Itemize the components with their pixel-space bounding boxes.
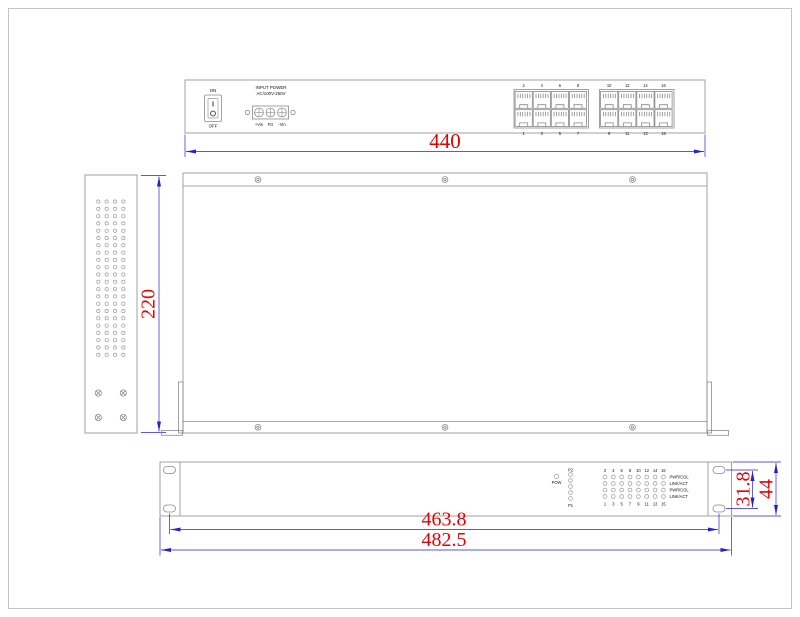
vent-hole [97, 229, 100, 232]
vent-hole [105, 309, 108, 312]
port-led [637, 488, 641, 492]
rj45-latch-notch [605, 105, 613, 109]
fiber-led [569, 473, 573, 477]
led-number-top: 14 [653, 468, 658, 473]
rj45-latch-notch [605, 123, 613, 127]
vent-hole [113, 302, 116, 305]
port-number-top: 6 [559, 83, 562, 88]
dim-44-text: 44 [756, 479, 778, 499]
screw-outer [630, 424, 636, 430]
led-number-bottom: 1 [604, 502, 607, 507]
rj45-latch-notch [660, 123, 668, 127]
rj45-port [601, 92, 618, 109]
vent-hole [97, 287, 100, 290]
vent-hole [97, 266, 100, 269]
input-power-label-line2: AC/100V-250V [256, 91, 285, 96]
fiber-top-label: P2 [568, 468, 574, 473]
vent-hole [113, 207, 116, 210]
rj45-port [655, 110, 672, 127]
port-led [603, 475, 607, 479]
port-led [611, 488, 615, 492]
vent-hole [105, 258, 108, 261]
vent-hole [122, 214, 125, 217]
vent-hole [122, 324, 125, 327]
vent-hole [122, 244, 125, 247]
vent-hole [122, 302, 125, 305]
port-number-top: 14 [643, 83, 648, 88]
port-led [628, 495, 632, 499]
screw-inner [444, 178, 446, 180]
power-switch-off-label: OFF [209, 124, 218, 129]
led-row-labels: PWR/COLLINK/ACTPWR/COLLINK/ACT [670, 475, 690, 500]
rj45-port [533, 110, 550, 127]
port-led [653, 475, 657, 479]
vent-hole [105, 200, 108, 203]
side-view: 220 [85, 175, 166, 433]
port-number-bottom: 3 [541, 131, 544, 136]
power-led [554, 474, 558, 478]
vent-hole [97, 236, 100, 239]
vent-hole [113, 251, 116, 254]
vent-hole [113, 258, 116, 261]
vent-hole [122, 339, 125, 342]
vent-hole [105, 339, 108, 342]
side-panel-outline [85, 175, 137, 433]
terminal-mount-hole-right [291, 110, 295, 114]
led-number-bottom: 13 [653, 502, 658, 507]
screw-outer [630, 177, 636, 183]
port-led [653, 488, 657, 492]
vent-hole [97, 317, 100, 320]
vent-hole [97, 222, 100, 225]
vent-hole [97, 324, 100, 327]
vent-hole [122, 295, 125, 298]
rj45-port-groups: 21436587109121114131615 [514, 83, 674, 136]
vent-hole [97, 200, 100, 203]
vent-hole [122, 251, 125, 254]
dim-440-text: 440 [429, 129, 461, 153]
rj45-latch-notch [556, 123, 564, 127]
port-number-bottom: 13 [643, 131, 648, 136]
vent-hole [122, 207, 125, 210]
port-led [603, 488, 607, 492]
vent-hole [122, 229, 125, 232]
port-led [620, 482, 624, 486]
rj45-port [515, 110, 532, 127]
fiber-led [569, 485, 573, 489]
port-led [645, 495, 649, 499]
vent-hole [113, 229, 116, 232]
dim-31-8-text: 31.8 [733, 472, 755, 507]
vent-hole [122, 222, 125, 225]
led-number-top: 8 [629, 468, 632, 473]
port-led [603, 482, 607, 486]
port-led [603, 495, 607, 499]
power-switch: ON OFF [205, 88, 222, 129]
screw-inner [631, 426, 633, 428]
ear-slot-top-right [713, 467, 725, 474]
rj45-latch-notch [538, 123, 546, 127]
vent-hole [97, 331, 100, 334]
port-number-bottom: 7 [577, 131, 580, 136]
side-screw-holes [95, 390, 126, 421]
front-panel-view: POW P2 P1 21436587109121114131615 PWR/CO… [160, 462, 781, 556]
led-number-top: 10 [636, 468, 641, 473]
vent-hole [113, 280, 116, 283]
port-led [628, 482, 632, 486]
side-screw-hole [120, 414, 126, 420]
dim-482-5-text: 482.5 [422, 529, 467, 551]
screw-inner [257, 426, 259, 428]
terminal-label-vplus: +Vin [255, 122, 264, 127]
rj45-port [551, 92, 568, 109]
vent-hole [122, 331, 125, 334]
vent-hole [105, 273, 108, 276]
port-number-top: 2 [523, 83, 526, 88]
port-number-top: 12 [625, 83, 630, 88]
vent-hole [113, 309, 116, 312]
vent-hole [122, 266, 125, 269]
port-number-top: 8 [577, 83, 580, 88]
port-led [645, 482, 649, 486]
vent-hole [105, 229, 108, 232]
rj45-latch-notch [538, 105, 546, 109]
rack-ear-left [162, 382, 184, 435]
led-number-bottom: 5 [621, 502, 624, 507]
rj45-port [637, 92, 654, 109]
vent-hole [113, 346, 116, 349]
vent-hole [113, 324, 116, 327]
rj45-port [569, 110, 586, 127]
port-number-bottom: 11 [625, 131, 630, 136]
rj45-port [655, 92, 672, 109]
led-row-label: LINK/ACT [670, 494, 689, 499]
fiber-led [569, 491, 573, 495]
rj45-latch-notch [556, 105, 564, 109]
screw-inner [631, 178, 633, 180]
port-led [662, 495, 666, 499]
vent-hole [105, 331, 108, 334]
side-screw-hole [120, 390, 126, 396]
screw-outer [442, 177, 448, 183]
cover-screw-hole [630, 177, 636, 183]
ear-slot-bottom-left [164, 505, 176, 512]
side-screw-hole [95, 414, 101, 420]
vent-hole [113, 244, 116, 247]
vent-hole [97, 280, 100, 283]
rj45-latch-notch [574, 123, 582, 127]
drawing-page: ON OFF INPUT POWER AC/100V-250V [0, 0, 800, 617]
port-led [662, 488, 666, 492]
port-number-bottom: 1 [523, 131, 526, 136]
vent-hole [122, 258, 125, 261]
port-number-bottom: 15 [661, 131, 666, 136]
vent-hole [105, 295, 108, 298]
vent-hole [105, 346, 108, 349]
vent-hole [105, 251, 108, 254]
vent-hole [105, 244, 108, 247]
cover-screw-hole [255, 424, 261, 430]
port-led [662, 475, 666, 479]
vent-hole [105, 353, 108, 356]
vent-hole [105, 207, 108, 210]
rj45-latch-notch [641, 123, 649, 127]
vent-hole [113, 331, 116, 334]
vent-hole [97, 309, 100, 312]
chassis-outline [183, 173, 707, 433]
dim-220-text: 220 [138, 289, 160, 319]
port-led [628, 475, 632, 479]
ear-slot-bottom-right [713, 505, 725, 512]
port-led [611, 495, 615, 499]
vent-hole [113, 266, 116, 269]
vent-hole [97, 339, 100, 342]
rj45-latch-notch [520, 123, 528, 127]
rj45-latch-notch [623, 123, 631, 127]
rj45-latch-notch [641, 105, 649, 109]
port-led [653, 495, 657, 499]
rack-ear-right [707, 382, 729, 435]
vent-hole [122, 317, 125, 320]
vent-hole [113, 353, 116, 356]
led-number-bottom: 15 [661, 502, 666, 507]
port-led-numbers: 21436587109121114131615 [604, 468, 667, 507]
led-row-label: PWR/COL [670, 488, 690, 493]
vent-hole [122, 346, 125, 349]
power-switch-rocker [208, 99, 218, 119]
cover-screw-hole [442, 424, 448, 430]
port-number-top: 10 [607, 83, 612, 88]
vent-hole [113, 287, 116, 290]
vent-hole [105, 266, 108, 269]
screw-outer [442, 424, 448, 430]
port-led [653, 482, 657, 486]
led-row-label: PWR/COL [670, 475, 690, 480]
port-led [628, 488, 632, 492]
cover-screw-holes [255, 177, 635, 431]
vent-hole [113, 214, 116, 217]
port-number-top: 16 [661, 83, 666, 88]
vent-hole [97, 346, 100, 349]
terminal-label-fg: FG [268, 122, 274, 127]
screw-outer [255, 177, 261, 183]
fiber-led-column [569, 473, 573, 501]
vent-hole [105, 280, 108, 283]
rj45-port [601, 110, 618, 127]
led-number-top: 16 [661, 468, 666, 473]
power-switch-body [205, 95, 222, 122]
vent-hole [97, 273, 100, 276]
vent-hole [122, 273, 125, 276]
vent-hole [122, 287, 125, 290]
cover-screw-hole [442, 177, 448, 183]
vent-hole [113, 295, 116, 298]
vent-hole [113, 339, 116, 342]
vent-hole [105, 317, 108, 320]
screw-outer [255, 424, 261, 430]
vent-hole [113, 222, 116, 225]
screw-inner [257, 178, 259, 180]
cover-screw-hole [630, 424, 636, 430]
terminal-label-vminus: -Vin [278, 122, 286, 127]
port-led [645, 488, 649, 492]
port-led [662, 482, 666, 486]
vent-hole [105, 222, 108, 225]
led-number-top: 2 [604, 468, 607, 473]
dim-463-8-text: 463.8 [422, 509, 467, 531]
vent-hole [97, 258, 100, 261]
rj45-group-1: 21436587 [514, 83, 589, 136]
ear-slot-top-left [164, 467, 176, 474]
port-led [620, 488, 624, 492]
led-number-bottom: 9 [637, 502, 640, 507]
vent-hole [97, 207, 100, 210]
terminal-screws [255, 108, 287, 117]
led-number-top: 4 [612, 468, 615, 473]
port-number-top: 4 [541, 83, 544, 88]
plan-view [162, 173, 729, 435]
led-row-label: LINK/ACT [670, 481, 689, 486]
ear-slots [164, 467, 726, 513]
vent-hole [105, 324, 108, 327]
vent-hole [113, 236, 116, 239]
port-led-grid [603, 475, 665, 498]
fiber-bottom-label: P1 [568, 503, 574, 508]
port-led [620, 475, 624, 479]
power-led-label: POW [552, 480, 562, 485]
vent-hole [105, 214, 108, 217]
switch-off-mark [211, 111, 216, 116]
rear-panel-view: ON OFF INPUT POWER AC/100V-250V [185, 80, 705, 157]
port-led [620, 495, 624, 499]
rj45-port [533, 92, 550, 109]
led-number-bottom: 3 [612, 502, 615, 507]
led-number-bottom: 11 [645, 502, 650, 507]
led-panel: POW P2 P1 21436587109121114131615 PWR/CO… [552, 468, 690, 509]
fiber-led [569, 497, 573, 501]
dim-31-8: 31.8 [726, 470, 758, 509]
vent-hole [122, 200, 125, 203]
vent-hole [97, 353, 100, 356]
rj45-latch-notch [623, 105, 631, 109]
port-number-bottom: 5 [559, 131, 562, 136]
port-led [645, 475, 649, 479]
vent-hole [97, 214, 100, 217]
vent-hole [105, 287, 108, 290]
rj45-port [515, 92, 532, 109]
vent-hole [97, 251, 100, 254]
vent-hole [122, 236, 125, 239]
port-number-bottom: 9 [608, 131, 611, 136]
input-power-label-line1: INPUT POWER [256, 85, 287, 90]
vent-hole-grid [97, 200, 125, 357]
rj45-latch-notch [660, 105, 668, 109]
port-led [611, 482, 615, 486]
cad-drawing-canvas: ON OFF INPUT POWER AC/100V-250V [0, 0, 800, 617]
vent-hole [97, 295, 100, 298]
vent-hole [122, 280, 125, 283]
vent-hole [105, 302, 108, 305]
port-led [637, 482, 641, 486]
port-led [637, 475, 641, 479]
vent-hole [113, 200, 116, 203]
terminal-mount-hole-left [245, 110, 249, 114]
vent-hole [122, 309, 125, 312]
vent-hole [105, 236, 108, 239]
port-led [611, 475, 615, 479]
vent-hole [97, 302, 100, 305]
side-screw-hole [95, 390, 101, 396]
rj45-port [569, 92, 586, 109]
vent-hole [122, 353, 125, 356]
power-input-terminal: INPUT POWER AC/100V-250V +Vin FG -Vin [245, 85, 295, 127]
rj45-port [619, 92, 636, 109]
screw-inner [444, 426, 446, 428]
rj45-port [637, 110, 654, 127]
vent-hole [97, 244, 100, 247]
led-number-bottom: 7 [629, 502, 632, 507]
fiber-led [569, 479, 573, 483]
rj45-port [619, 110, 636, 127]
dim-220: 220 [138, 176, 167, 433]
power-switch-on-label: ON [210, 88, 217, 93]
vent-hole [113, 273, 116, 276]
port-led [637, 495, 641, 499]
led-number-top: 6 [621, 468, 624, 473]
rj45-latch-notch [574, 105, 582, 109]
rj45-group-2: 109121114131615 [600, 83, 675, 136]
vent-hole [113, 317, 116, 320]
cover-screw-hole [255, 177, 261, 183]
rj45-latch-notch [520, 105, 528, 109]
led-number-top: 12 [644, 468, 649, 473]
rj45-port [551, 110, 568, 127]
